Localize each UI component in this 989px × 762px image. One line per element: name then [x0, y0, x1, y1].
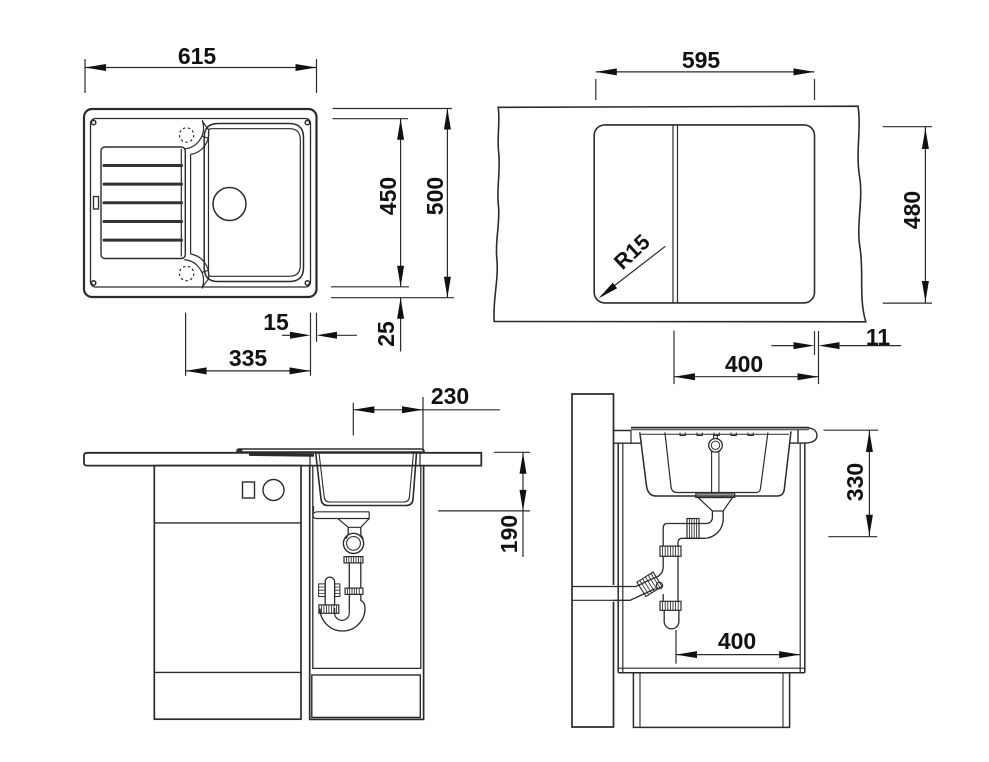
svg-text:330: 330: [842, 463, 868, 501]
svg-text:400: 400: [725, 351, 763, 377]
svg-text:400: 400: [718, 628, 756, 654]
svg-text:595: 595: [682, 47, 721, 73]
svg-text:450: 450: [375, 177, 401, 215]
svg-text:500: 500: [422, 177, 448, 215]
svg-text:615: 615: [178, 43, 217, 69]
svg-text:335: 335: [229, 345, 268, 371]
svg-text:230: 230: [431, 383, 469, 409]
svg-text:190: 190: [496, 515, 522, 553]
svg-text:25: 25: [373, 321, 399, 347]
svg-text:11: 11: [866, 324, 891, 350]
svg-text:15: 15: [263, 309, 289, 335]
svg-text:480: 480: [899, 191, 925, 229]
